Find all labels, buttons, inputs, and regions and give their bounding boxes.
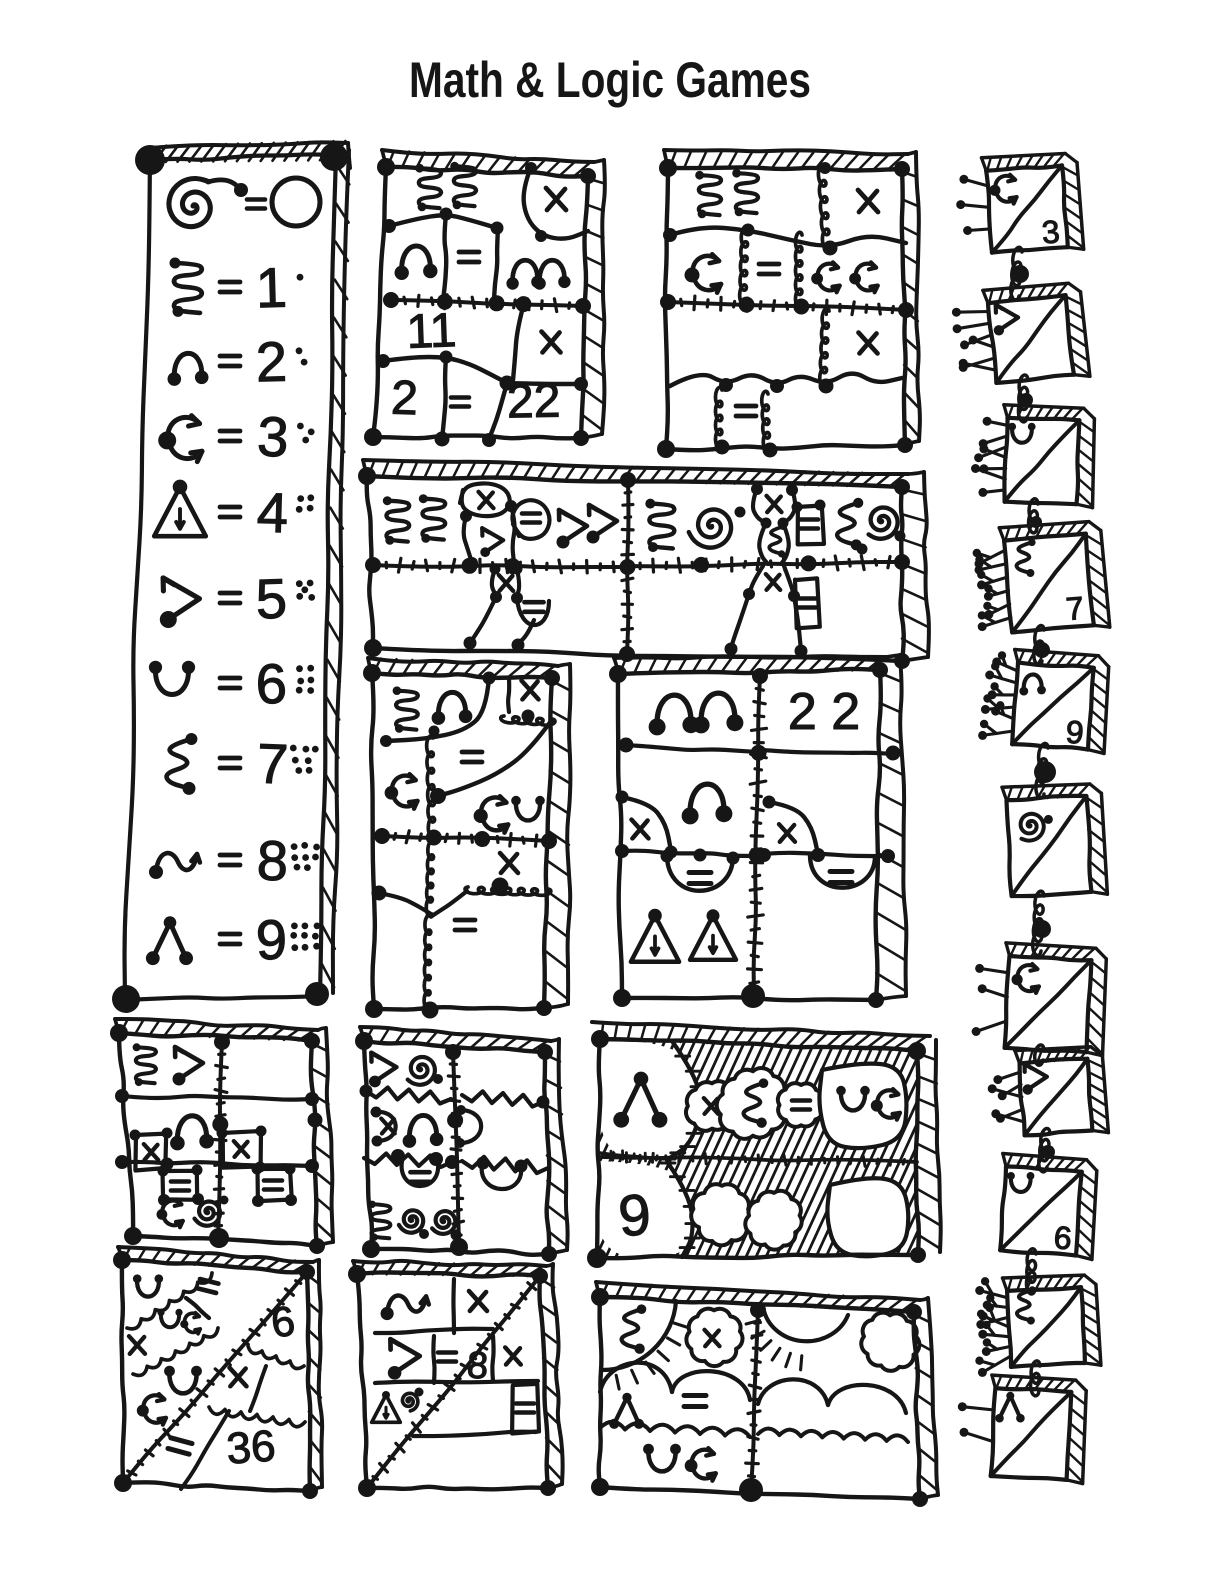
svg-text:8: 8	[466, 1344, 489, 1387]
svg-text:8: 8	[256, 829, 289, 893]
svg-text:9: 9	[255, 908, 288, 972]
svg-text:9: 9	[616, 1182, 653, 1249]
svg-text:3: 3	[256, 404, 290, 468]
svg-text:2 2: 2 2	[788, 683, 860, 741]
svg-text:Math & Logic Games: Math & Logic Games	[409, 52, 811, 108]
svg-text:5: 5	[255, 567, 288, 631]
svg-text:36: 36	[225, 1421, 277, 1473]
svg-text:4: 4	[256, 481, 289, 545]
svg-text:22: 22	[507, 375, 561, 429]
svg-text:7: 7	[1065, 590, 1086, 627]
svg-text:2: 2	[255, 330, 288, 394]
svg-text:6: 6	[1053, 1219, 1073, 1256]
svg-text:11: 11	[406, 304, 458, 359]
svg-text:3: 3	[1041, 213, 1061, 250]
svg-text:9: 9	[1065, 714, 1085, 751]
svg-text:7: 7	[256, 731, 289, 795]
svg-text:2: 2	[390, 372, 419, 426]
svg-text:6: 6	[255, 651, 288, 715]
svg-text:1: 1	[255, 256, 288, 320]
